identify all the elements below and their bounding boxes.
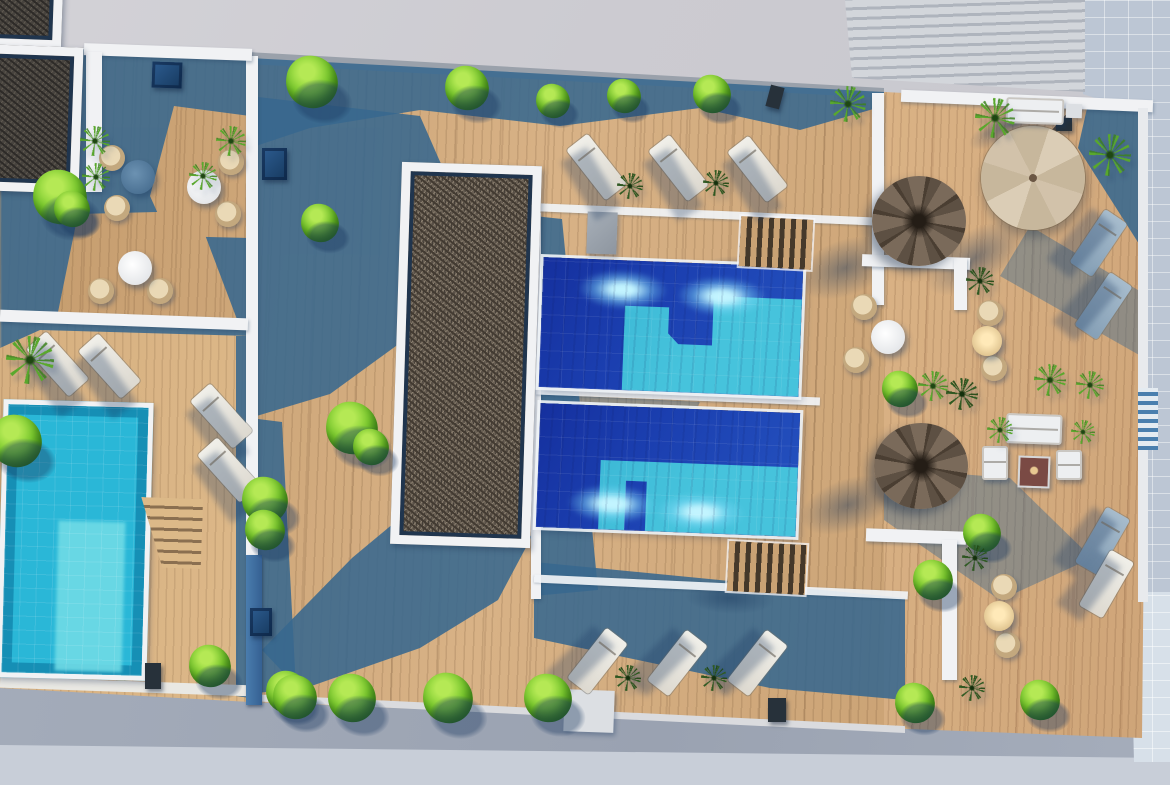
- blue-gate-box: [250, 608, 272, 636]
- round-table-4: [871, 320, 905, 354]
- sofa-side-table: [1066, 104, 1082, 119]
- wicker-chair-6: [147, 278, 173, 304]
- wall-stairs1-vertical: [954, 258, 967, 310]
- wicker-chair-4: [215, 201, 241, 227]
- spiral-stair-2: [874, 423, 968, 509]
- round-table-6: [984, 601, 1014, 631]
- pool-lower-tiles: [536, 403, 801, 537]
- rooftop-terrace-render: [0, 0, 1170, 785]
- wicker-chair-8: [843, 347, 869, 373]
- gravel-monolith: [390, 162, 542, 548]
- wicker-chair-2: [104, 195, 130, 221]
- skylight-box-2: [262, 148, 287, 180]
- pool-lower: [536, 403, 801, 537]
- outdoor-shower-left: [145, 663, 161, 689]
- lounge-coffee-table: [1017, 455, 1050, 488]
- round-table-3: [118, 251, 152, 285]
- lounge-sofa: [1005, 413, 1062, 445]
- wicker-chair-5: [88, 278, 114, 304]
- wicker-chair-10: [981, 355, 1007, 381]
- wicker-chair-12: [994, 632, 1020, 658]
- spiral-stair-1: [872, 176, 966, 266]
- wood-stairs-2: [727, 541, 808, 595]
- outdoor-shower-main: [768, 698, 786, 722]
- round-table-5: [972, 326, 1002, 356]
- wood-stairs-1: [739, 216, 814, 270]
- skylight-box-1: [152, 61, 183, 88]
- wicker-chair-9: [977, 300, 1003, 326]
- wicker-chair-11: [991, 574, 1017, 600]
- pool-upper-tiles: [539, 257, 804, 397]
- balcony-railing: [1138, 388, 1158, 450]
- lounge-armchair-right: [1056, 450, 1082, 480]
- gravel-corner: [0, 0, 63, 49]
- lounge-armchair-left: [982, 446, 1008, 480]
- wicker-chair-7: [851, 294, 877, 320]
- wall-right-edge: [1138, 108, 1148, 602]
- towel-mat: [586, 211, 617, 254]
- round-table-1: [121, 160, 155, 194]
- gravel-bed-top-left: [0, 44, 84, 193]
- pool-upper: [539, 257, 804, 397]
